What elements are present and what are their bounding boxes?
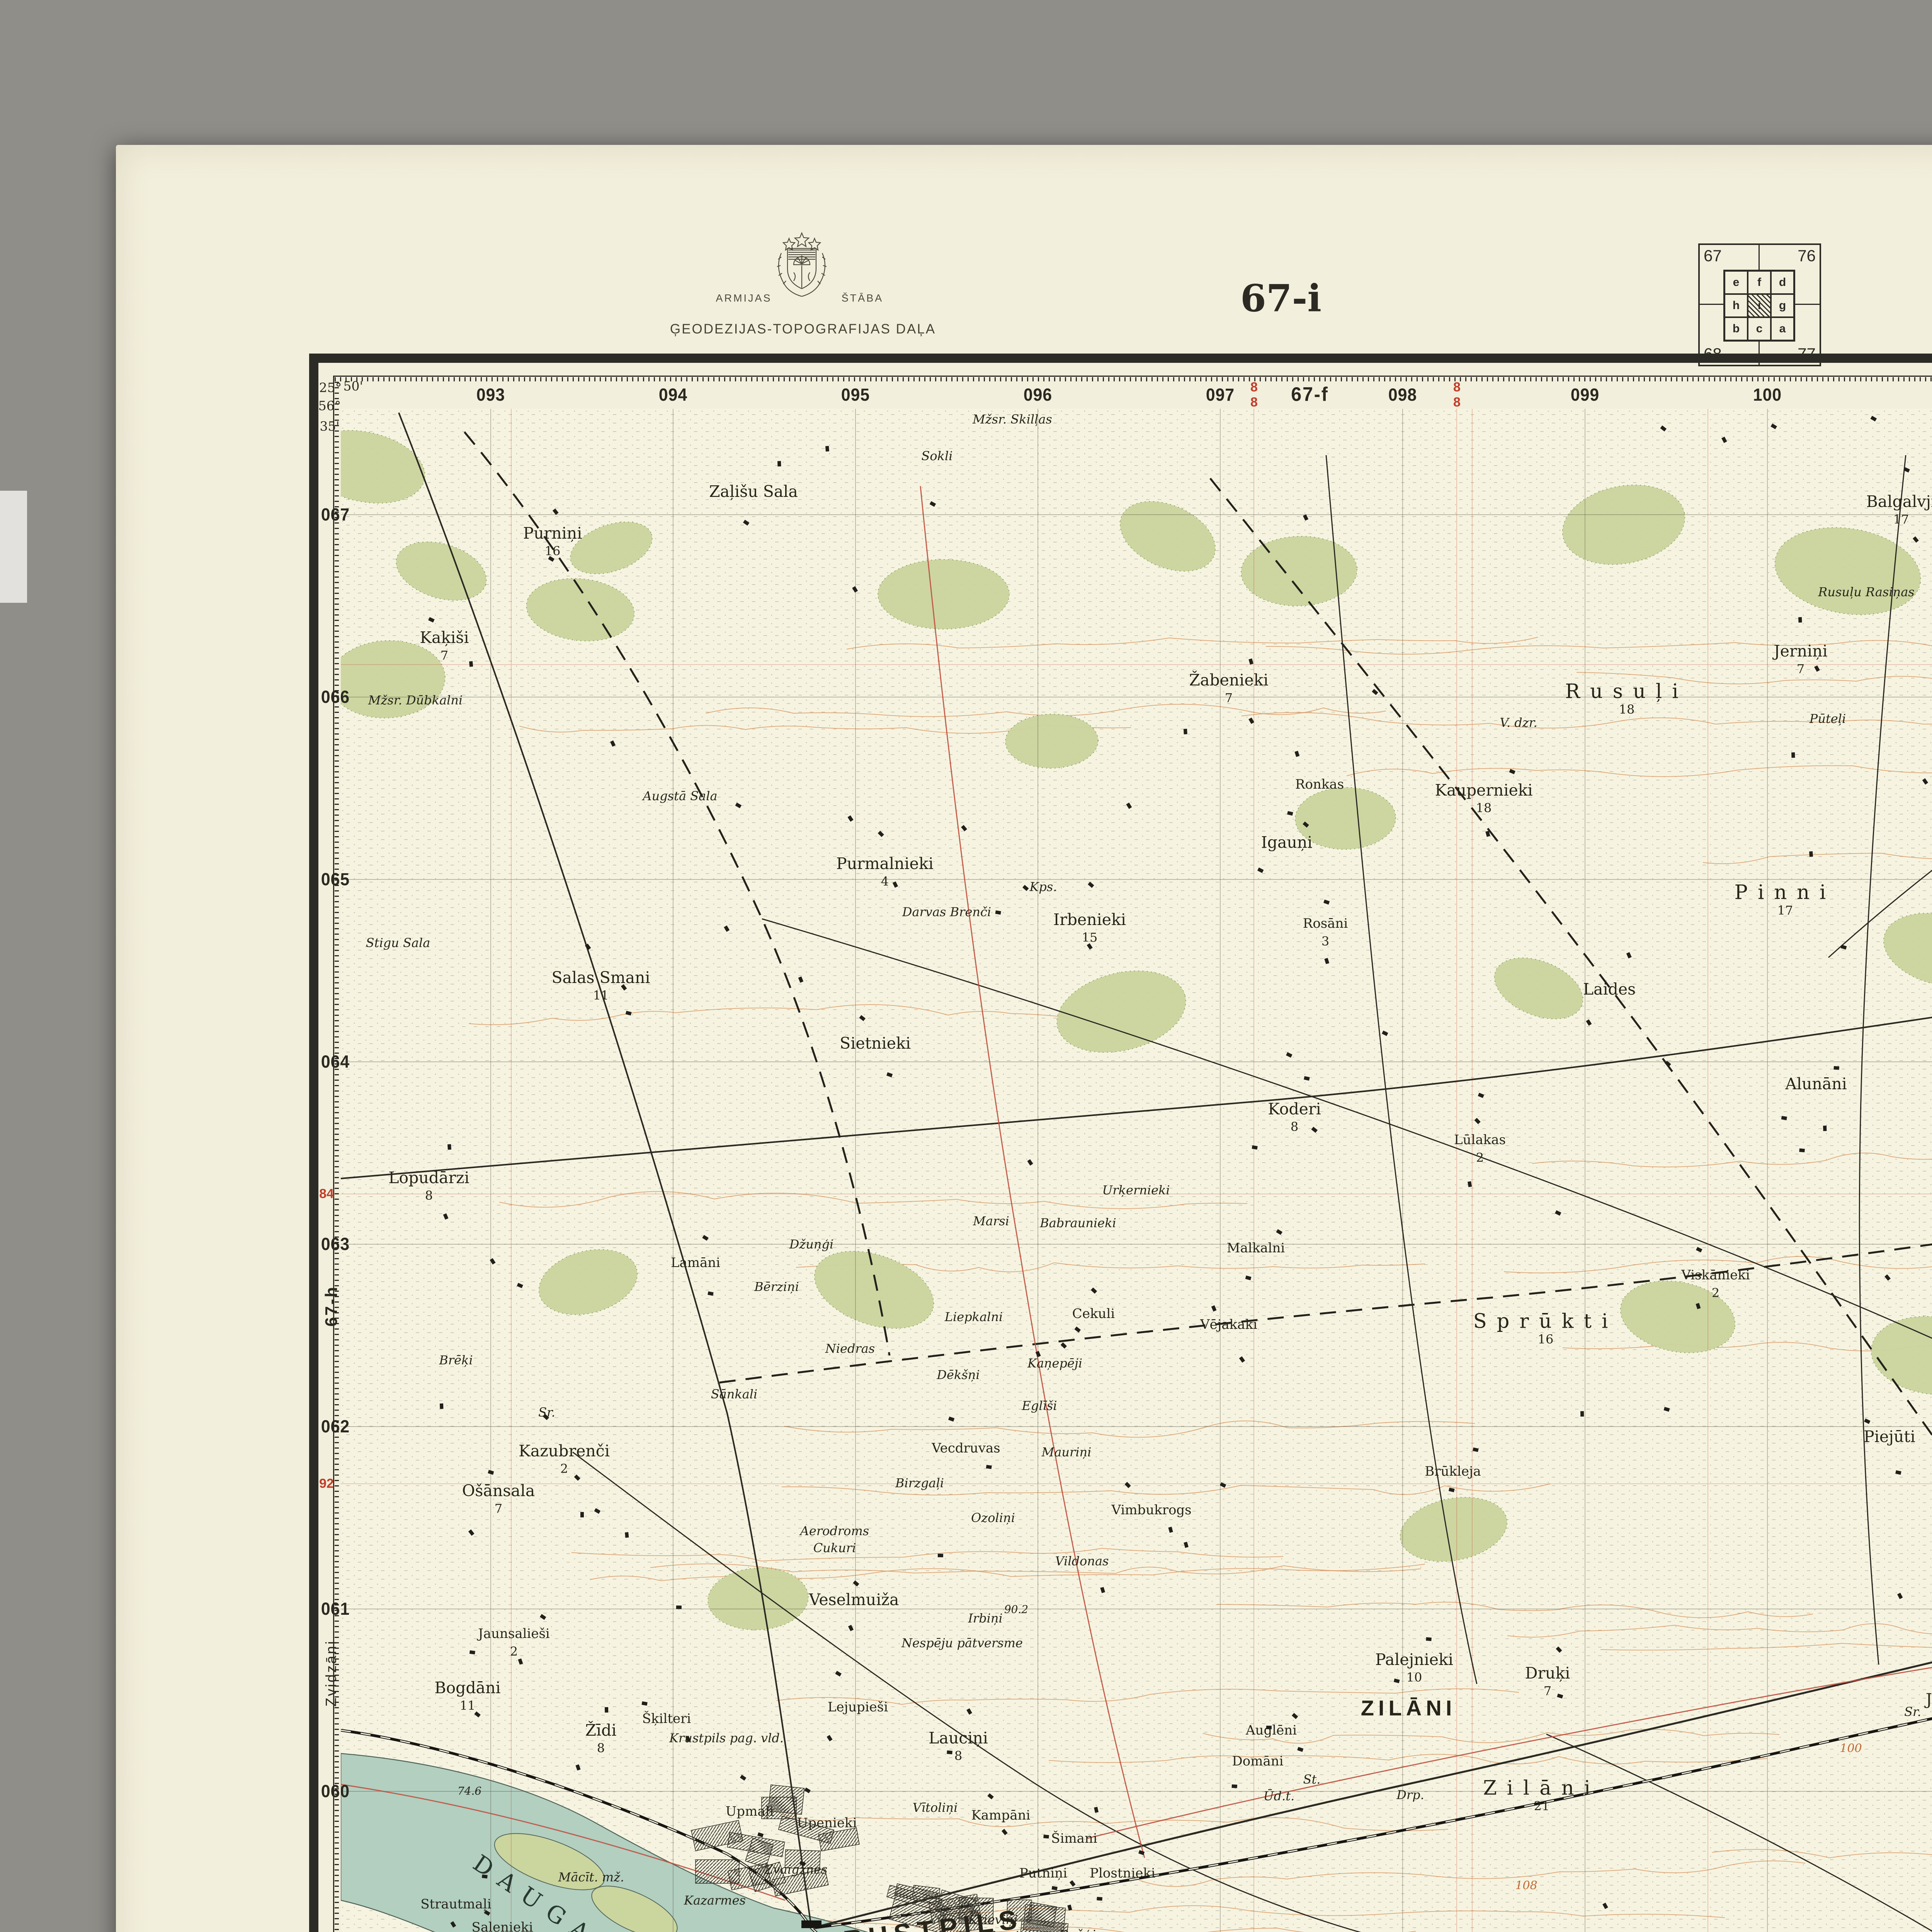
map-label: Brēķi	[439, 1353, 473, 1367]
index-cell: g	[1771, 294, 1794, 317]
grid-number-left: 060	[321, 1781, 350, 1801]
map-label: Sietnieki	[840, 1034, 911, 1053]
map-label-number: 2	[1712, 1286, 1719, 1300]
grid-number-top: 094	[659, 385, 687, 405]
map-label: Dēkšņi	[937, 1367, 980, 1382]
map-label-number: 7	[1797, 662, 1804, 676]
grid-number-left: 066	[321, 687, 350, 707]
map-label: 100	[1840, 1742, 1862, 1755]
map-label: Eglīši	[1022, 1398, 1057, 1413]
map-label: Druķi	[1525, 1664, 1570, 1682]
map-label: Purmalnieki	[836, 854, 934, 873]
map-label: Laides	[1583, 980, 1636, 998]
map-label: Nespēju pātversme	[901, 1636, 1023, 1650]
map-label: Purniņi	[523, 524, 582, 543]
map-label: Kaupernieki	[1435, 781, 1532, 799]
emblem-left-caption: ARMIJAS	[716, 293, 772, 304]
map-label: Bērziņi	[754, 1279, 799, 1294]
map-label: Pūteļi	[1810, 711, 1846, 726]
map-label: Mācīt. mž.	[558, 1870, 624, 1884]
grid-number-top: 093	[476, 385, 505, 405]
adjacent-sheet-ref: 67-f	[1291, 383, 1329, 406]
grid-number-left: 061	[321, 1599, 350, 1619]
map-label: Vējakaki	[1200, 1317, 1257, 1332]
map-label: Ronkas	[1295, 777, 1344, 792]
map-label: V. dzr.	[1500, 715, 1537, 730]
map-label: Pinni	[1735, 881, 1836, 904]
map-label: Auglēni	[1246, 1723, 1297, 1738]
map-label: Cekuli	[1072, 1306, 1115, 1321]
map-label: Kazubrenči	[519, 1442, 610, 1460]
map-label-number: 8	[597, 1741, 605, 1755]
map-label: Bogdāni	[434, 1679, 500, 1697]
map-label: Irbiņi	[968, 1611, 1003, 1626]
map-label: 90.2	[1004, 1603, 1028, 1616]
emblem-right-caption: ŠTĀBA	[842, 293, 884, 304]
grid-number-left: 065	[321, 869, 350, 889]
grid-number-left: 063	[321, 1234, 350, 1254]
map-label: Birzgaļi	[895, 1476, 944, 1490]
map-label-number: 16	[545, 544, 561, 558]
sheet-number: 67-i	[1240, 277, 1321, 320]
map-label: Mžsr. Skilļas	[973, 412, 1052, 427]
map-label: Stigu Sala	[366, 935, 430, 950]
map-label: Zvaigznes	[765, 1862, 828, 1877]
map-label: Sprūkti	[1473, 1310, 1618, 1333]
map-label: Kazarmes	[684, 1893, 746, 1908]
map-label: Šimani	[1051, 1831, 1097, 1846]
map-label: Putniņi	[1019, 1866, 1067, 1881]
index-sheet-nw: 67	[1704, 247, 1722, 265]
map-label: Veselmuiža	[809, 1590, 899, 1609]
index-cell: d	[1771, 271, 1794, 294]
map-label-number: 21	[1534, 1799, 1550, 1813]
map-label-number: 16	[1538, 1332, 1554, 1347]
map-label: Drp.	[1396, 1787, 1424, 1802]
map-label: Jaunāmuiža	[1926, 1690, 1932, 1709]
map-label-number: 10	[1406, 1670, 1422, 1685]
map-label: Vildonas	[1055, 1554, 1109, 1568]
map-label: Upenieki	[797, 1815, 857, 1831]
map-label: Mžsr. Dūbkalni	[368, 693, 463, 707]
map-label: Irbenieki	[1053, 910, 1126, 929]
map-label: Režģi	[1060, 1927, 1097, 1932]
index-sheet-ne: 76	[1798, 247, 1816, 265]
map-label: Urķernieki	[1102, 1183, 1170, 1197]
map-label-number: 2	[510, 1644, 518, 1659]
index-subsheet-grid: e f d h i g b c a	[1723, 270, 1795, 342]
index-cell: e	[1725, 271, 1748, 294]
map-label: 74.6	[457, 1785, 481, 1798]
map-label-number: 11	[460, 1698, 476, 1713]
map-label-number: 7	[1225, 690, 1233, 705]
grid-number-left: 064	[321, 1052, 350, 1072]
map-label: Kampāni	[971, 1808, 1031, 1823]
map-label: Vimbukrogs	[1111, 1502, 1191, 1518]
map-label: Rosāni	[1303, 916, 1348, 931]
map-label: Zilāni	[1483, 1777, 1600, 1800]
map-label: Salas Smani	[551, 968, 650, 987]
grid-number-top: 099	[1571, 385, 1599, 405]
map-label: Malkalni	[1227, 1240, 1285, 1256]
grid-number-top: 100	[1753, 385, 1782, 405]
map-label: Niedras	[825, 1341, 875, 1356]
map-label: Sānkali	[711, 1387, 758, 1401]
map-label: Tauriņi	[986, 1929, 1031, 1932]
map-label: Cukuri	[813, 1541, 856, 1555]
corner-coordinate: 50'	[343, 379, 363, 394]
map-label: Ozoliņi	[971, 1510, 1015, 1525]
grid-number-top: 098	[1388, 385, 1417, 405]
map-label-number: 8	[425, 1188, 433, 1203]
grid-number-top: 096	[1024, 385, 1052, 405]
map-label: Salenieki	[472, 1920, 533, 1932]
map-label: Igauņi	[1261, 833, 1313, 852]
map-label: Rusuļu Rasiņas	[1818, 585, 1914, 599]
index-cell: c	[1748, 317, 1771, 340]
map-label-number: 7	[495, 1501, 502, 1516]
map-label-number: 7	[1544, 1684, 1551, 1698]
map-label: Palejnieki	[1375, 1650, 1453, 1669]
map-label: 108	[1515, 1879, 1537, 1893]
map-label-number: 4	[881, 874, 889, 889]
map-label: Ūd.t.	[1264, 1789, 1295, 1803]
map-label: Kps.	[1030, 879, 1057, 894]
map-label: Jaunsalieši	[478, 1626, 550, 1641]
map-label-number: 2	[560, 1461, 568, 1476]
map-label: Marsi	[973, 1214, 1009, 1228]
corner-coordinate: 56°	[318, 398, 341, 413]
map-label: Džuņģi	[789, 1237, 833, 1252]
map-label: Koderi	[1268, 1100, 1321, 1118]
map-label: Sokli	[921, 449, 952, 463]
map-label: Liepkalni	[945, 1310, 1003, 1324]
map-label: Žabenieki	[1189, 671, 1268, 689]
red-grid-number: 92	[319, 1476, 334, 1492]
margin-sheet-label: Zvidzāni	[323, 1639, 340, 1707]
map-label-number: 8	[954, 1748, 962, 1763]
map-label: Ošānsala	[462, 1481, 535, 1500]
map-label: Lopudārzi	[388, 1168, 469, 1187]
index-cell: h	[1725, 294, 1748, 317]
map-label: Babraunieki	[1040, 1216, 1116, 1230]
map-label: Darvas Brenči	[902, 905, 991, 919]
map-label: Zaļišu Sala	[709, 482, 798, 501]
map-label: Rusuļi	[1565, 680, 1689, 703]
map-label-number: 8	[1291, 1119, 1298, 1134]
map-label: Sr.	[1904, 1704, 1921, 1719]
grid-number-left: 062	[321, 1417, 350, 1437]
army-staff-emblem-icon	[761, 230, 842, 303]
map-label: Augstā Sala	[643, 789, 717, 803]
grid-number-top: 095	[841, 385, 870, 405]
map-label: Balgalvji	[1866, 492, 1932, 511]
grid-number-left: 067	[321, 505, 350, 525]
index-cell-current: i	[1748, 294, 1771, 317]
map-label-number: 18	[1619, 702, 1635, 717]
map-label-layer: Mžsr. SkilļasSokliZaļišu SalaPurniņi16Ka…	[341, 409, 1932, 1932]
map-label: Lamāni	[671, 1255, 720, 1270]
map-label: Strautmaļi	[420, 1896, 491, 1912]
red-grid-number: 84	[319, 1187, 334, 1202]
map-label-number: 3	[1321, 934, 1329, 949]
map-label: Alunāni	[1785, 1075, 1847, 1093]
index-cell: b	[1725, 317, 1748, 340]
map-label: Kaņepēji	[1027, 1356, 1082, 1371]
red-grid-number: 88	[1247, 380, 1262, 410]
issuing-department: ĢEODEZIJAS-TOPOGRAFIJAS DAĻA	[670, 321, 936, 337]
map-label-number: 17	[1893, 512, 1909, 527]
map-label-number: 18	[1476, 801, 1492, 815]
map-label: Mauriņi	[1042, 1445, 1092, 1459]
map-label-number: 17	[1777, 903, 1793, 918]
grid-number-top: 097	[1206, 385, 1235, 405]
map-label-number: 2	[1476, 1150, 1484, 1165]
map-label: Vecdruvas	[932, 1440, 1000, 1456]
minute-ticks-top	[335, 377, 1932, 381]
map-label: St.	[1303, 1772, 1321, 1787]
map-label: Krieviņi	[968, 1912, 1018, 1927]
corner-coordinate: 35'	[320, 419, 339, 434]
map-label: Žīdi	[585, 1721, 617, 1740]
map-label: Aerodroms	[800, 1524, 869, 1538]
corner-coordinate: 25°	[319, 380, 342, 395]
map-label: Šķilteri	[642, 1711, 691, 1726]
map-label: ZILĀNI	[1361, 1696, 1456, 1721]
map-label: Lūlakas	[1454, 1132, 1506, 1148]
map-label-number: 15	[1082, 930, 1098, 945]
map-label: Brūkleja	[1425, 1464, 1481, 1479]
map-label-number: 7	[440, 648, 448, 663]
map-label: Kaķiši	[420, 628, 469, 647]
index-cell: f	[1748, 271, 1771, 294]
map-label: Piejūti	[1864, 1427, 1915, 1446]
map-label: Aizupes Lamaņi	[1571, 1930, 1698, 1932]
red-grid-number: 88	[1449, 380, 1464, 410]
map-label: Sr.	[538, 1405, 555, 1420]
map-label: Krustpils pag. vld.	[669, 1731, 784, 1745]
scanned-topographic-map-screenshot: ARMIJAS ŠTĀBA ĢEODEZIJAS-TOPOGRAFIJAS DA…	[0, 0, 1932, 1932]
map-label: Plostnieki	[1090, 1866, 1155, 1881]
map-label: Viskānieki	[1681, 1267, 1750, 1283]
index-cell: a	[1771, 317, 1794, 340]
map-label: Domāni	[1232, 1753, 1283, 1769]
map-label-number: 11	[593, 988, 609, 1003]
map-label: Vītoliņi	[913, 1800, 958, 1815]
map-label: Lejupieši	[828, 1699, 888, 1715]
margin-sheet-label: 67-h	[322, 1286, 341, 1327]
map-label: Lauciņi	[929, 1729, 988, 1747]
map-label: Upmaļi	[726, 1804, 774, 1819]
map-label: Jerniņi	[1774, 642, 1827, 660]
scanner-artifact	[0, 491, 27, 603]
